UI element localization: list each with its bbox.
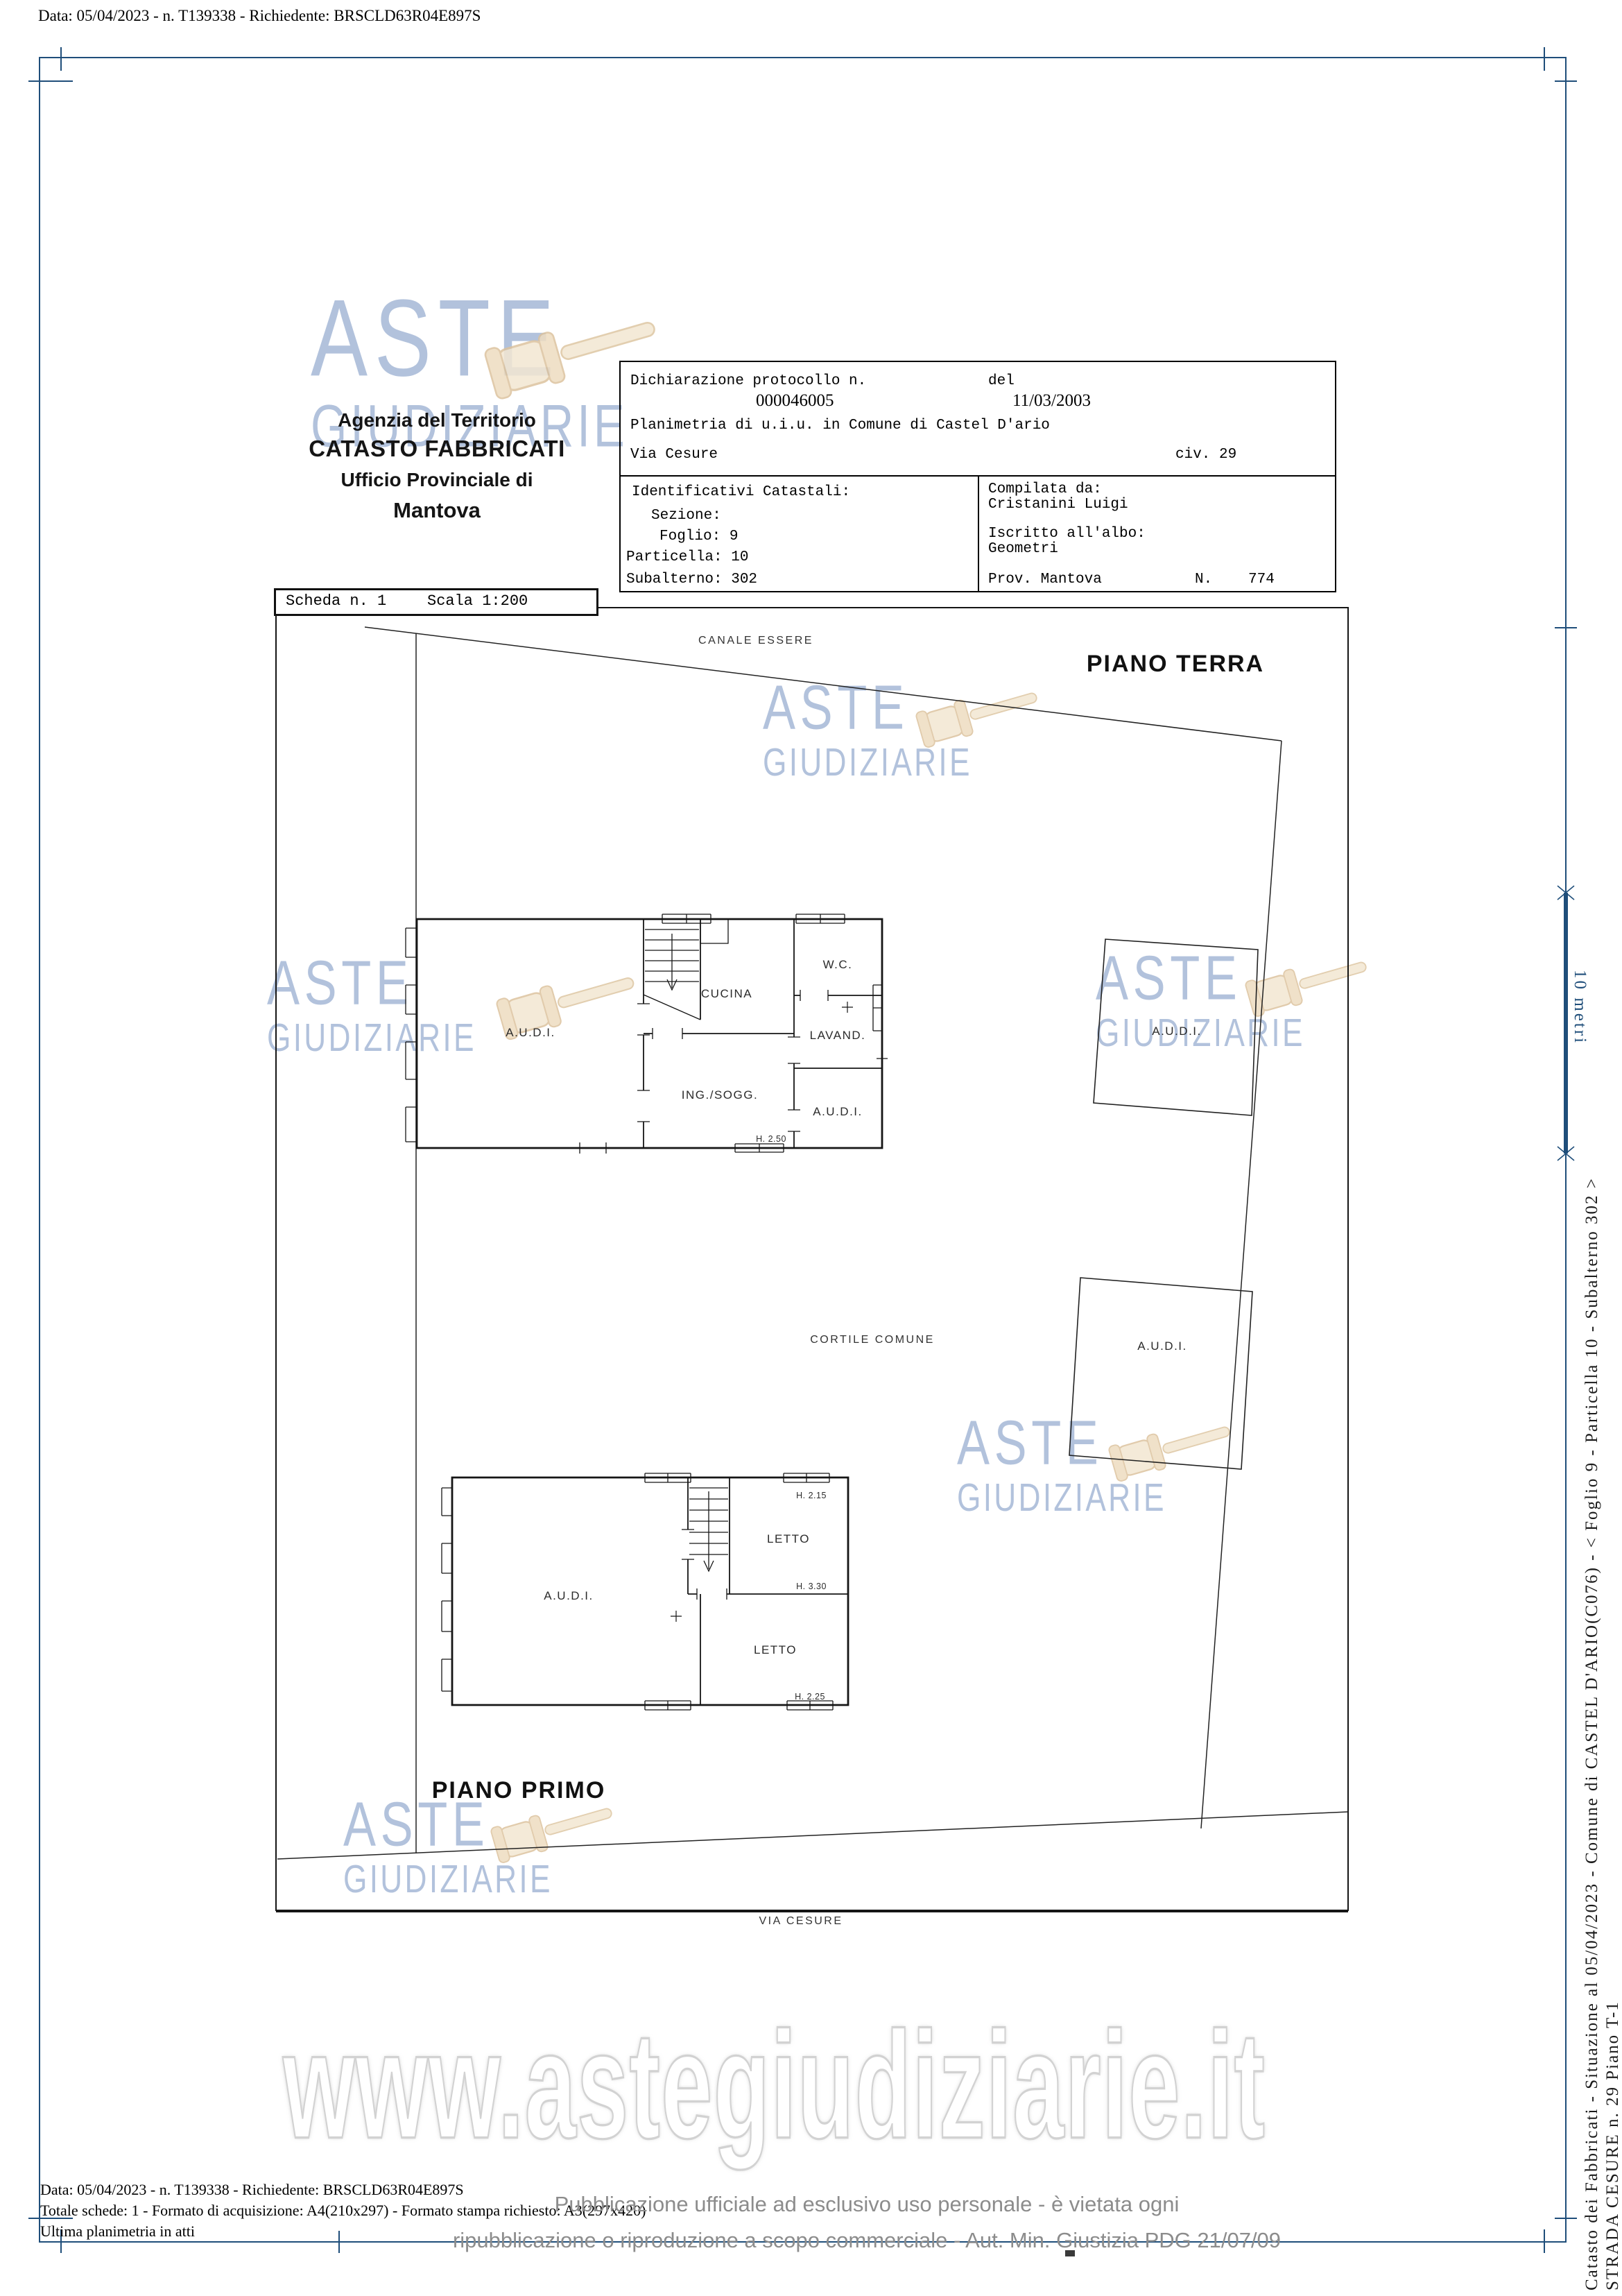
annex-buildings bbox=[1069, 939, 1258, 1469]
street-name: Via Cesure bbox=[630, 447, 718, 463]
canal-label: CANALE ESSERE bbox=[698, 635, 813, 646]
plan-labels: CANALE ESSERE PIANO TERRA A.U.D.I. CUCIN… bbox=[432, 635, 1264, 1927]
document-page: ASTE GIUDIZIARIE ASTE GIUDIZIARIE ASTE G… bbox=[0, 0, 1622, 2296]
piano-primo-label: PIANO PRIMO bbox=[432, 1777, 606, 1804]
height-h215: H. 2.15 bbox=[796, 1491, 827, 1500]
site-boundaries bbox=[277, 627, 1348, 1859]
header-line: Data: 05/04/2023 - n. T139338 - Richiede… bbox=[38, 7, 481, 25]
height-h225: H. 2.25 bbox=[795, 1692, 825, 1702]
east-boundary-line bbox=[1201, 741, 1282, 1828]
first-floor-unit bbox=[442, 1473, 848, 1710]
room-audi-first: A.U.D.I. bbox=[544, 1589, 594, 1602]
civ-number: civ. 29 bbox=[1175, 447, 1236, 463]
prov-value: Prov. Mantova bbox=[988, 572, 1102, 588]
albo-label: Iscritto all'albo: bbox=[988, 526, 1146, 542]
scale-bar-label: 10 metri bbox=[1570, 970, 1589, 1088]
protocol-number: 000046005 bbox=[756, 391, 834, 411]
room-cucina: CUCINA bbox=[701, 987, 752, 1000]
height-h330: H. 3.30 bbox=[796, 1582, 827, 1591]
room-audi-annex-upper: A.U.D.I. bbox=[1152, 1025, 1202, 1038]
compilata-label: Compilata da: bbox=[988, 481, 1102, 497]
subalterno-field: Subalterno: 302 bbox=[626, 572, 757, 588]
del-label: del bbox=[988, 373, 1015, 389]
identifiers-title: Identificativi Catastali: bbox=[632, 484, 850, 500]
room-wc: W.C. bbox=[823, 958, 853, 971]
particella-field: Particella: 10 bbox=[626, 549, 748, 565]
scheda-number: Scheda n. 1 bbox=[286, 592, 386, 610]
foglio-field: Foglio: 9 bbox=[659, 529, 738, 545]
agency-line1: Agenzia del Territorio bbox=[229, 408, 645, 433]
room-letto-lower: LETTO bbox=[754, 1643, 797, 1656]
agency-line3: Ufficio Provinciale di bbox=[229, 465, 645, 495]
scala-value: Scala 1:200 bbox=[427, 592, 528, 610]
room-audi-right: A.U.D.I. bbox=[813, 1105, 863, 1118]
annex-lower bbox=[1069, 1278, 1252, 1469]
agency-line2: CATASTO FABBRICATI bbox=[229, 433, 645, 465]
room-lavand: LAVAND. bbox=[810, 1029, 866, 1042]
sidebar-caption-line2: STRADA CESURE n. 29 Piano T-1 bbox=[1603, 1597, 1622, 2290]
piano-terra-label: PIANO TERRA bbox=[1087, 651, 1264, 677]
compiler-name: Cristanini Luigi bbox=[988, 497, 1128, 513]
agency-line4: Mantova bbox=[229, 495, 645, 526]
room-audi-annex-lower: A.U.D.I. bbox=[1137, 1339, 1187, 1353]
canal-line bbox=[365, 627, 1282, 741]
cortile-label: CORTILE COMUNE bbox=[810, 1334, 935, 1346]
agency-block: Agenzia del Territorio CATASTO FABBRICAT… bbox=[229, 408, 645, 526]
scan-artifact-mark bbox=[1065, 2250, 1075, 2256]
height-h250: H. 2.50 bbox=[756, 1134, 786, 1144]
albo-number: 774 bbox=[1248, 572, 1275, 588]
plan-border bbox=[276, 608, 1348, 1911]
box-vertical-divider bbox=[978, 475, 979, 591]
legal-notice: Pubblicazione ufficiale ad esclusivo uso… bbox=[277, 2186, 1456, 2259]
n-label: N. bbox=[1195, 572, 1212, 588]
legal-notice-line2: ripubblicazione o riproduzione a scopo c… bbox=[277, 2222, 1456, 2259]
planimetria-line: Planimetria di u.i.u. in Comune di Caste… bbox=[630, 418, 1050, 434]
sezione-field: Sezione: bbox=[651, 508, 721, 524]
road-line bbox=[277, 1812, 1348, 1859]
protocol-date: 11/03/2003 bbox=[1012, 391, 1091, 411]
room-ing-sogg: ING./SOGG. bbox=[682, 1088, 758, 1102]
via-cesure-label: VIA CESURE bbox=[759, 1915, 843, 1927]
declaration-label: Dichiarazione protocollo n. bbox=[630, 373, 866, 389]
declaration-box: Dichiarazione protocollo n. del 00004600… bbox=[619, 361, 1336, 592]
albo-value: Geometri bbox=[988, 541, 1058, 557]
room-audi-left: A.U.D.I. bbox=[506, 1026, 555, 1039]
plan-drawing: CANALE ESSERE PIANO TERRA A.U.D.I. CUCIN… bbox=[0, 0, 1622, 2296]
sidebar-caption-line1: Catasto dei Fabbricati - Situazione al 0… bbox=[1582, 1097, 1602, 2290]
legal-notice-line1: Pubblicazione ufficiale ad esclusivo uso… bbox=[277, 2186, 1456, 2222]
room-letto-upper: LETTO bbox=[767, 1532, 810, 1545]
scheda-box: Scheda n. 1 Scala 1:200 bbox=[274, 588, 598, 616]
